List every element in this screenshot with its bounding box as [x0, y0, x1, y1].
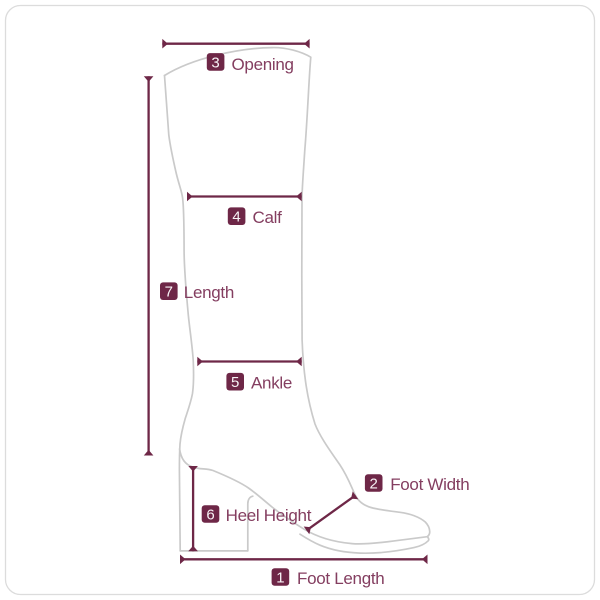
svg-text:Heel Height: Heel Height	[226, 506, 312, 525]
svg-text:Ankle: Ankle	[251, 374, 292, 393]
svg-text:1: 1	[276, 569, 284, 586]
svg-text:7: 7	[165, 284, 173, 301]
svg-text:Opening: Opening	[232, 55, 294, 74]
svg-text:5: 5	[231, 374, 239, 391]
svg-text:2: 2	[370, 475, 378, 492]
svg-text:Foot Length: Foot Length	[297, 569, 384, 588]
svg-text:Foot Width: Foot Width	[390, 475, 469, 494]
svg-text:6: 6	[206, 506, 214, 523]
svg-text:3: 3	[211, 54, 219, 71]
svg-text:Calf: Calf	[253, 208, 283, 227]
svg-text:Length: Length	[184, 283, 234, 302]
svg-text:4: 4	[232, 209, 240, 226]
